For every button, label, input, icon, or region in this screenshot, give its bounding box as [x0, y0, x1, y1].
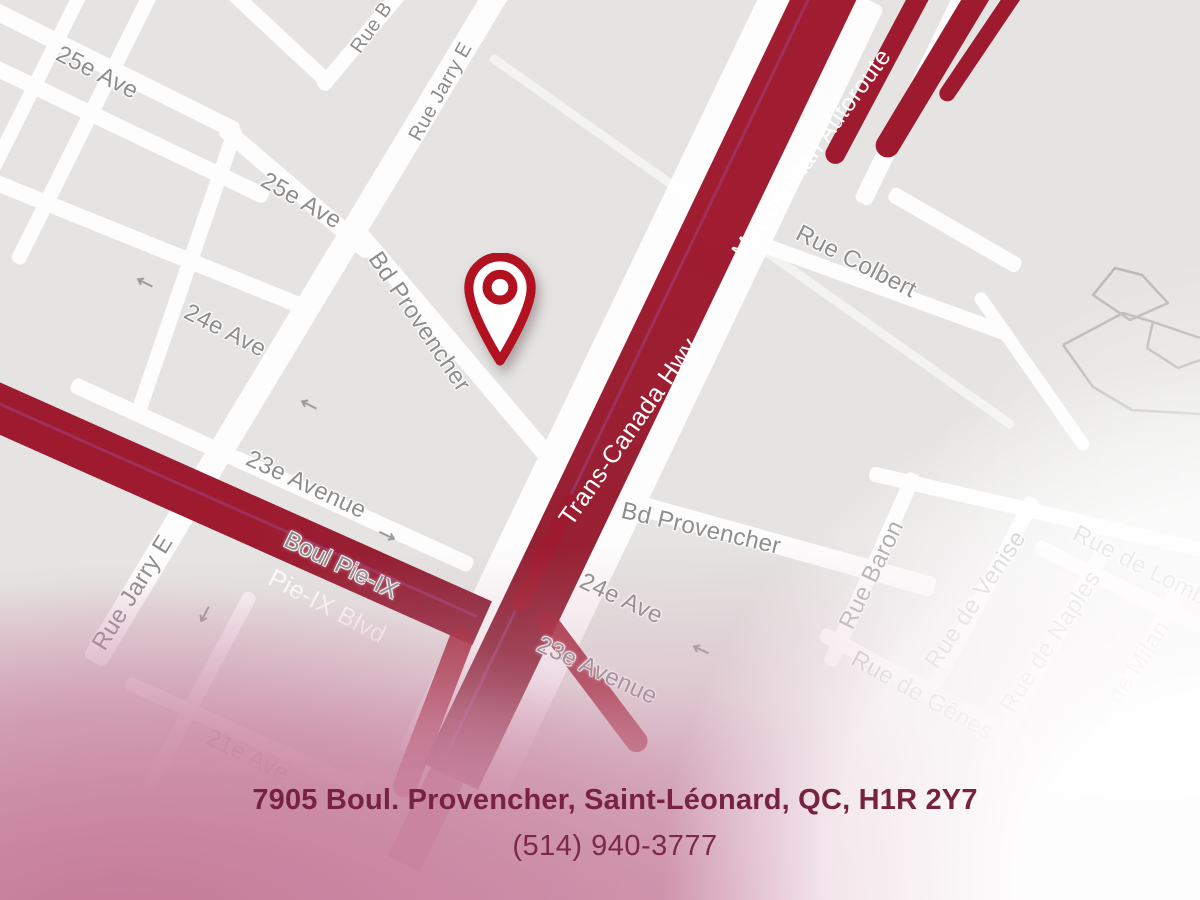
highway-ramp: [871, 0, 995, 162]
one-way-arrow-icon: [293, 392, 321, 418]
map-canvas: 25e Ave 25e Ave Rue Jarry E Rue Jarry E …: [0, 0, 1200, 900]
building-outlines: [1000, 230, 1200, 440]
one-way-arrow-icon: [192, 602, 218, 630]
street-label-bd-provencher: Bd Provencher: [619, 497, 784, 561]
street-label-25e-ave: 25e Ave: [256, 167, 347, 235]
street-label-rue-jarry-e: Rue Jarry E: [87, 530, 180, 655]
one-way-arrow-icon: [129, 270, 157, 296]
phone-number: (514) 940-3777: [30, 830, 1200, 863]
street-label-rue-de-venise: Rue de Venise: [920, 526, 1033, 674]
map-pin-icon: [462, 253, 538, 367]
one-way-arrow-icon: [685, 637, 713, 663]
street-label-rue-de-naples: Rue de Naples: [995, 566, 1107, 718]
street-label-rue-jarry-e: Rue Jarry E: [405, 39, 478, 145]
street-label-rue-b: Rue B: [346, 0, 398, 58]
street-label-24e-ave: 24e Ave: [179, 298, 270, 363]
address-text: 7905 Boul. Provencher, Saint-Léonard, QC…: [30, 784, 1200, 817]
street-label-bd-provencher: Bd Provencher: [362, 247, 476, 398]
location-info: 7905 Boul. Provencher, Saint-Léonard, QC…: [30, 784, 1200, 863]
street-label-rue-de-milan: Rue de Milan: [1074, 616, 1176, 753]
